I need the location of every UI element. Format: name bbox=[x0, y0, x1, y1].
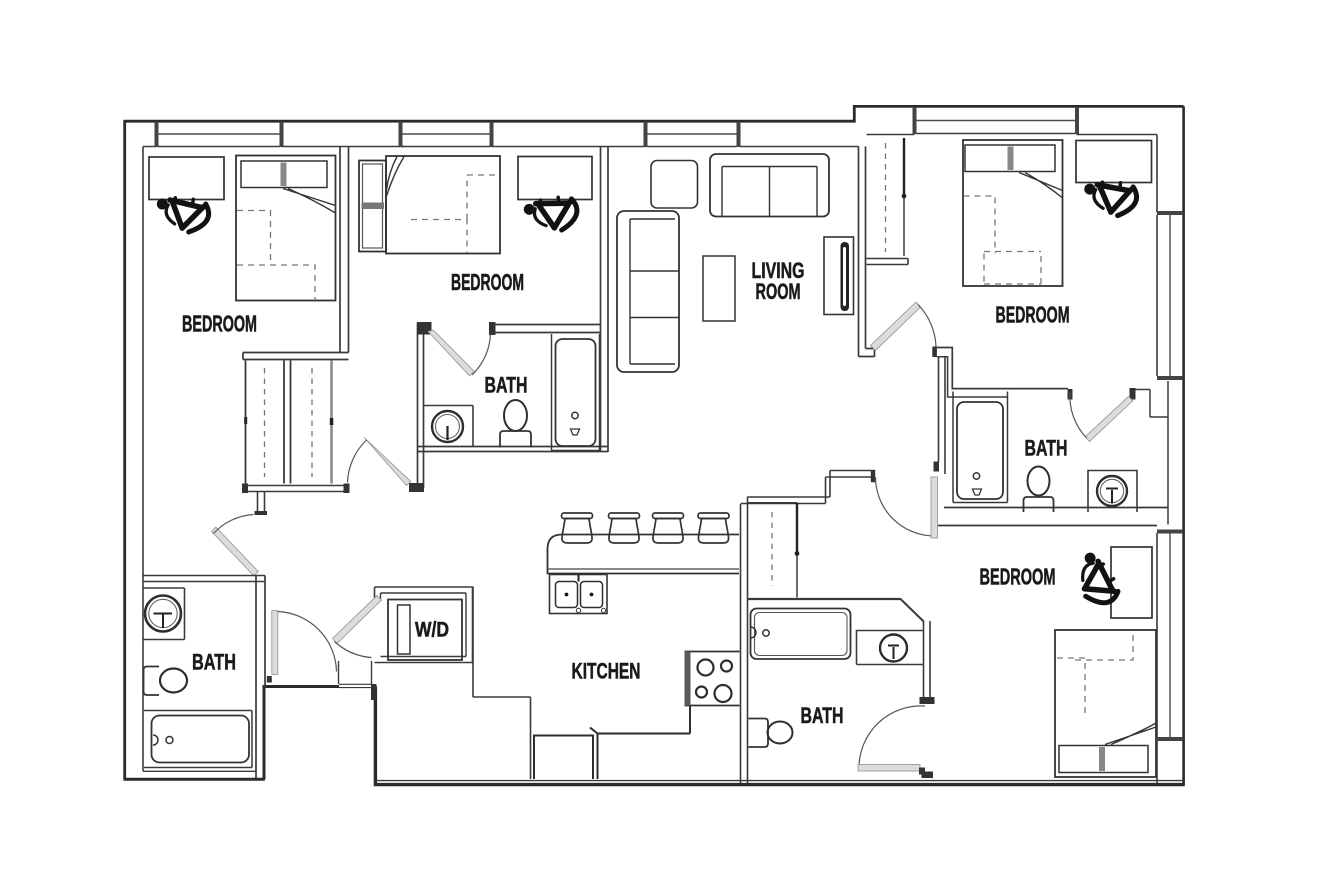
svg-text:BATH: BATH bbox=[801, 703, 844, 728]
svg-text:BATH: BATH bbox=[1025, 436, 1068, 461]
svg-text:KITCHEN: KITCHEN bbox=[572, 659, 641, 684]
svg-text:W/D: W/D bbox=[415, 619, 449, 642]
svg-text:BATH: BATH bbox=[485, 373, 528, 398]
svg-text:BATH: BATH bbox=[192, 650, 236, 675]
svg-text:ROOM: ROOM bbox=[756, 279, 801, 304]
svg-text:BEDROOM: BEDROOM bbox=[182, 311, 257, 337]
svg-text:BEDROOM: BEDROOM bbox=[996, 302, 1070, 328]
svg-text:BEDROOM: BEDROOM bbox=[980, 564, 1056, 590]
svg-text:BEDROOM: BEDROOM bbox=[451, 269, 524, 295]
